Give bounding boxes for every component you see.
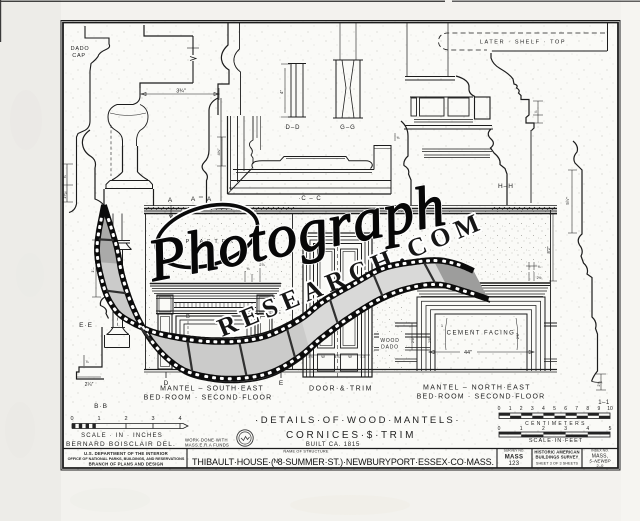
svg-text:B: B bbox=[186, 314, 190, 320]
svg-text:10: 10 bbox=[607, 406, 613, 412]
svg-text:3: 3 bbox=[564, 426, 567, 432]
svg-text:6: 6 bbox=[564, 406, 567, 412]
svg-text:4: 4 bbox=[586, 426, 589, 432]
svg-text:A: A bbox=[168, 197, 173, 204]
svg-text:4: 4 bbox=[542, 406, 545, 412]
svg-text:MASS: MASS bbox=[505, 455, 524, 461]
svg-text:123: 123 bbox=[509, 461, 520, 467]
svg-text:B·B: B·B bbox=[94, 403, 108, 410]
svg-text:2: 2 bbox=[542, 426, 545, 432]
svg-text:2: 2 bbox=[124, 416, 127, 422]
svg-text:LATER · SHELF · TOP: LATER · SHELF · TOP bbox=[480, 40, 566, 46]
svg-text:0: 0 bbox=[498, 406, 501, 412]
svg-text:WOOD: WOOD bbox=[380, 338, 399, 344]
svg-text:4¾: 4¾ bbox=[334, 355, 340, 359]
svg-text:MASS.E.R.A FUNDS: MASS.E.R.A FUNDS bbox=[185, 443, 229, 448]
svg-text:9: 9 bbox=[598, 406, 601, 412]
svg-text:0: 0 bbox=[498, 426, 501, 432]
svg-text:1⁹⁄₁₆: 1⁹⁄₁₆ bbox=[62, 191, 67, 199]
svg-text:CEMENT FACING: CEMENT FACING bbox=[447, 331, 516, 337]
svg-text:SCALE · IN · INCHES: SCALE · IN · INCHES bbox=[81, 433, 163, 439]
svg-text:1: 1 bbox=[509, 406, 512, 412]
svg-text:C O R N I C E S · $ · T R I M: C O R N I C E S · $ · T R I M bbox=[286, 430, 414, 441]
svg-text:BED·ROOM · SECOND·FLOOR: BED·ROOM · SECOND·FLOOR bbox=[417, 394, 546, 401]
svg-text:BRANCH OF PLANS AND DESIGN: BRANCH OF PLANS AND DESIGN bbox=[89, 461, 164, 466]
svg-text:SCALE·IN·FEET: SCALE·IN·FEET bbox=[529, 438, 583, 444]
svg-text:⅝: ⅝ bbox=[538, 265, 541, 269]
svg-text:INDEX NO.: INDEX NO. bbox=[591, 449, 608, 453]
svg-text:3: 3 bbox=[151, 416, 154, 422]
svg-text:2: 2 bbox=[520, 406, 523, 412]
svg-text:SHEET 3 OF 3 SHEETS: SHEET 3 OF 3 SHEETS bbox=[536, 462, 579, 466]
svg-text:DOOR·&·TRIM: DOOR·&·TRIM bbox=[309, 386, 373, 393]
svg-text:C E N T I M E T E R S: C E N T I M E T E R S bbox=[525, 421, 585, 427]
svg-text:5: 5 bbox=[609, 426, 612, 432]
svg-text:⅝: ⅝ bbox=[397, 136, 400, 140]
svg-text:4¾: 4¾ bbox=[308, 355, 314, 359]
svg-text:3: 3 bbox=[531, 406, 534, 412]
svg-text:NAME OF STRUCTURE: NAME OF STRUCTURE bbox=[283, 450, 328, 454]
svg-text:2–0: 2–0 bbox=[597, 463, 605, 468]
svg-text:7: 7 bbox=[575, 406, 578, 412]
svg-text:4⅝″: 4⅝″ bbox=[216, 148, 221, 156]
svg-text:1: 1 bbox=[97, 416, 100, 422]
svg-text:2½: 2½ bbox=[537, 276, 542, 280]
svg-text:3¾″: 3¾″ bbox=[176, 89, 186, 95]
svg-text:8: 8 bbox=[586, 406, 589, 412]
svg-text:BUILDINGS SURVEY: BUILDINGS SURVEY bbox=[536, 455, 579, 460]
svg-text:2′6″: 2′6″ bbox=[428, 336, 432, 343]
svg-text:DADO: DADO bbox=[381, 345, 399, 351]
svg-text:BUILT CA. 1815: BUILT CA. 1815 bbox=[306, 442, 360, 448]
svg-text:1: 1 bbox=[520, 426, 523, 432]
svg-text:MANTEL – NORTH·EAST: MANTEL – NORTH·EAST bbox=[423, 385, 531, 392]
svg-text:E·E: E·E bbox=[79, 322, 93, 329]
svg-text:5½″: 5½″ bbox=[565, 197, 570, 205]
svg-text:D–D: D–D bbox=[285, 125, 300, 131]
svg-text:U.S. DEPARTMENT OF THE INTERIO: U.S. DEPARTMENT OF THE INTERIOR bbox=[84, 451, 169, 456]
svg-text:H–H: H–H bbox=[498, 183, 514, 190]
svg-text:THIBAULT·HOUSE·(ᴺ8·SUMMER·ST.): THIBAULT·HOUSE·(ᴺ8·SUMMER·ST.)·NEWBURYPO… bbox=[192, 457, 494, 467]
svg-text:G–G: G–G bbox=[340, 125, 356, 131]
svg-text:E: E bbox=[279, 380, 284, 387]
svg-text:2′6″: 2′6″ bbox=[516, 332, 520, 339]
svg-text:2′6″: 2′6″ bbox=[411, 336, 415, 343]
svg-text:8′2″: 8′2″ bbox=[546, 246, 551, 253]
svg-text:W: W bbox=[321, 355, 325, 359]
svg-text:4.5: 4.5 bbox=[360, 355, 365, 359]
svg-text:W: W bbox=[348, 355, 352, 359]
svg-text:2⅛: 2⅛ bbox=[597, 381, 601, 386]
svg-text:1′–: 1′– bbox=[90, 267, 95, 273]
svg-text:A: A bbox=[191, 196, 196, 203]
svg-text:2¼″: 2¼″ bbox=[85, 382, 94, 388]
svg-text:5: 5 bbox=[553, 406, 556, 412]
svg-text:DADO: DADO bbox=[71, 46, 90, 52]
svg-text:SURVEY NO.: SURVEY NO. bbox=[504, 449, 525, 453]
svg-text:⅞: ⅞ bbox=[534, 110, 538, 113]
svg-text:BERNARD BOISCLAIR DEL.: BERNARD BOISCLAIR DEL. bbox=[66, 441, 176, 448]
svg-text:· D E T A I L S · O F · W: · D E T A I L S · O F · W O O D · M A N … bbox=[255, 415, 459, 426]
svg-text:BED·ROOM · SECOND·FLOOR: BED·ROOM · SECOND·FLOOR bbox=[144, 395, 273, 402]
svg-text:44″: 44″ bbox=[464, 350, 472, 356]
svg-text:4″: 4″ bbox=[279, 90, 284, 95]
svg-text:4: 4 bbox=[178, 416, 181, 422]
svg-text:0: 0 bbox=[70, 416, 73, 422]
svg-text:MANTEL – SOUTH·EAST: MANTEL – SOUTH·EAST bbox=[160, 386, 264, 393]
svg-text:CAP: CAP bbox=[72, 53, 85, 59]
